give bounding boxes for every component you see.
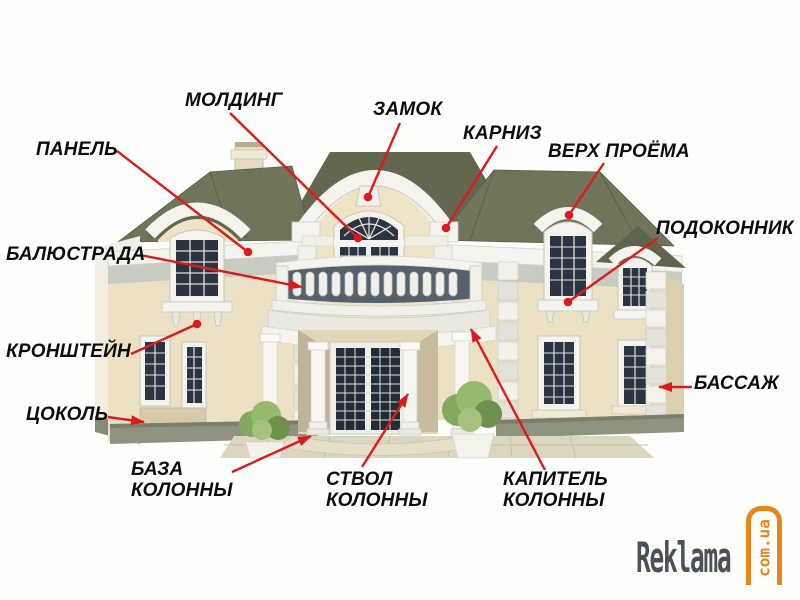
- label-keystone: ЗАМОК: [373, 99, 442, 120]
- label-bracket: КРОНШТЕЙН: [6, 341, 131, 362]
- label-bossage: БАССАЖ: [694, 373, 779, 394]
- label-column-shaft: СТВОЛ КОЛОННЫ: [326, 469, 428, 512]
- label-layer: ПАНЕЛЬМОЛДИНГЗАМОККАРНИЗВЕРХ ПРОЁМАПОДОК…: [0, 0, 800, 600]
- label-panel: ПАНЕЛЬ: [36, 139, 118, 160]
- label-windowsill: ПОДОКОННИК: [656, 218, 794, 239]
- label-column-capital: КАПИТЕЛЬ КОЛОННЫ: [503, 469, 608, 512]
- label-opening-top: ВЕРХ ПРОЁМА: [548, 141, 690, 162]
- label-cornice: КАРНИЗ: [463, 123, 542, 144]
- label-moulding: МОЛДИНГ: [185, 90, 283, 111]
- label-column-base: БАЗА КОЛОННЫ: [131, 459, 233, 502]
- label-plinth: ЦОКОЛЬ: [26, 404, 108, 425]
- label-balustrade: БАЛЮСТРАДА: [6, 244, 145, 265]
- diagram-stage: ПАНЕЛЬМОЛДИНГЗАМОККАРНИЗВЕРХ ПРОЁМАПОДОК…: [0, 0, 800, 600]
